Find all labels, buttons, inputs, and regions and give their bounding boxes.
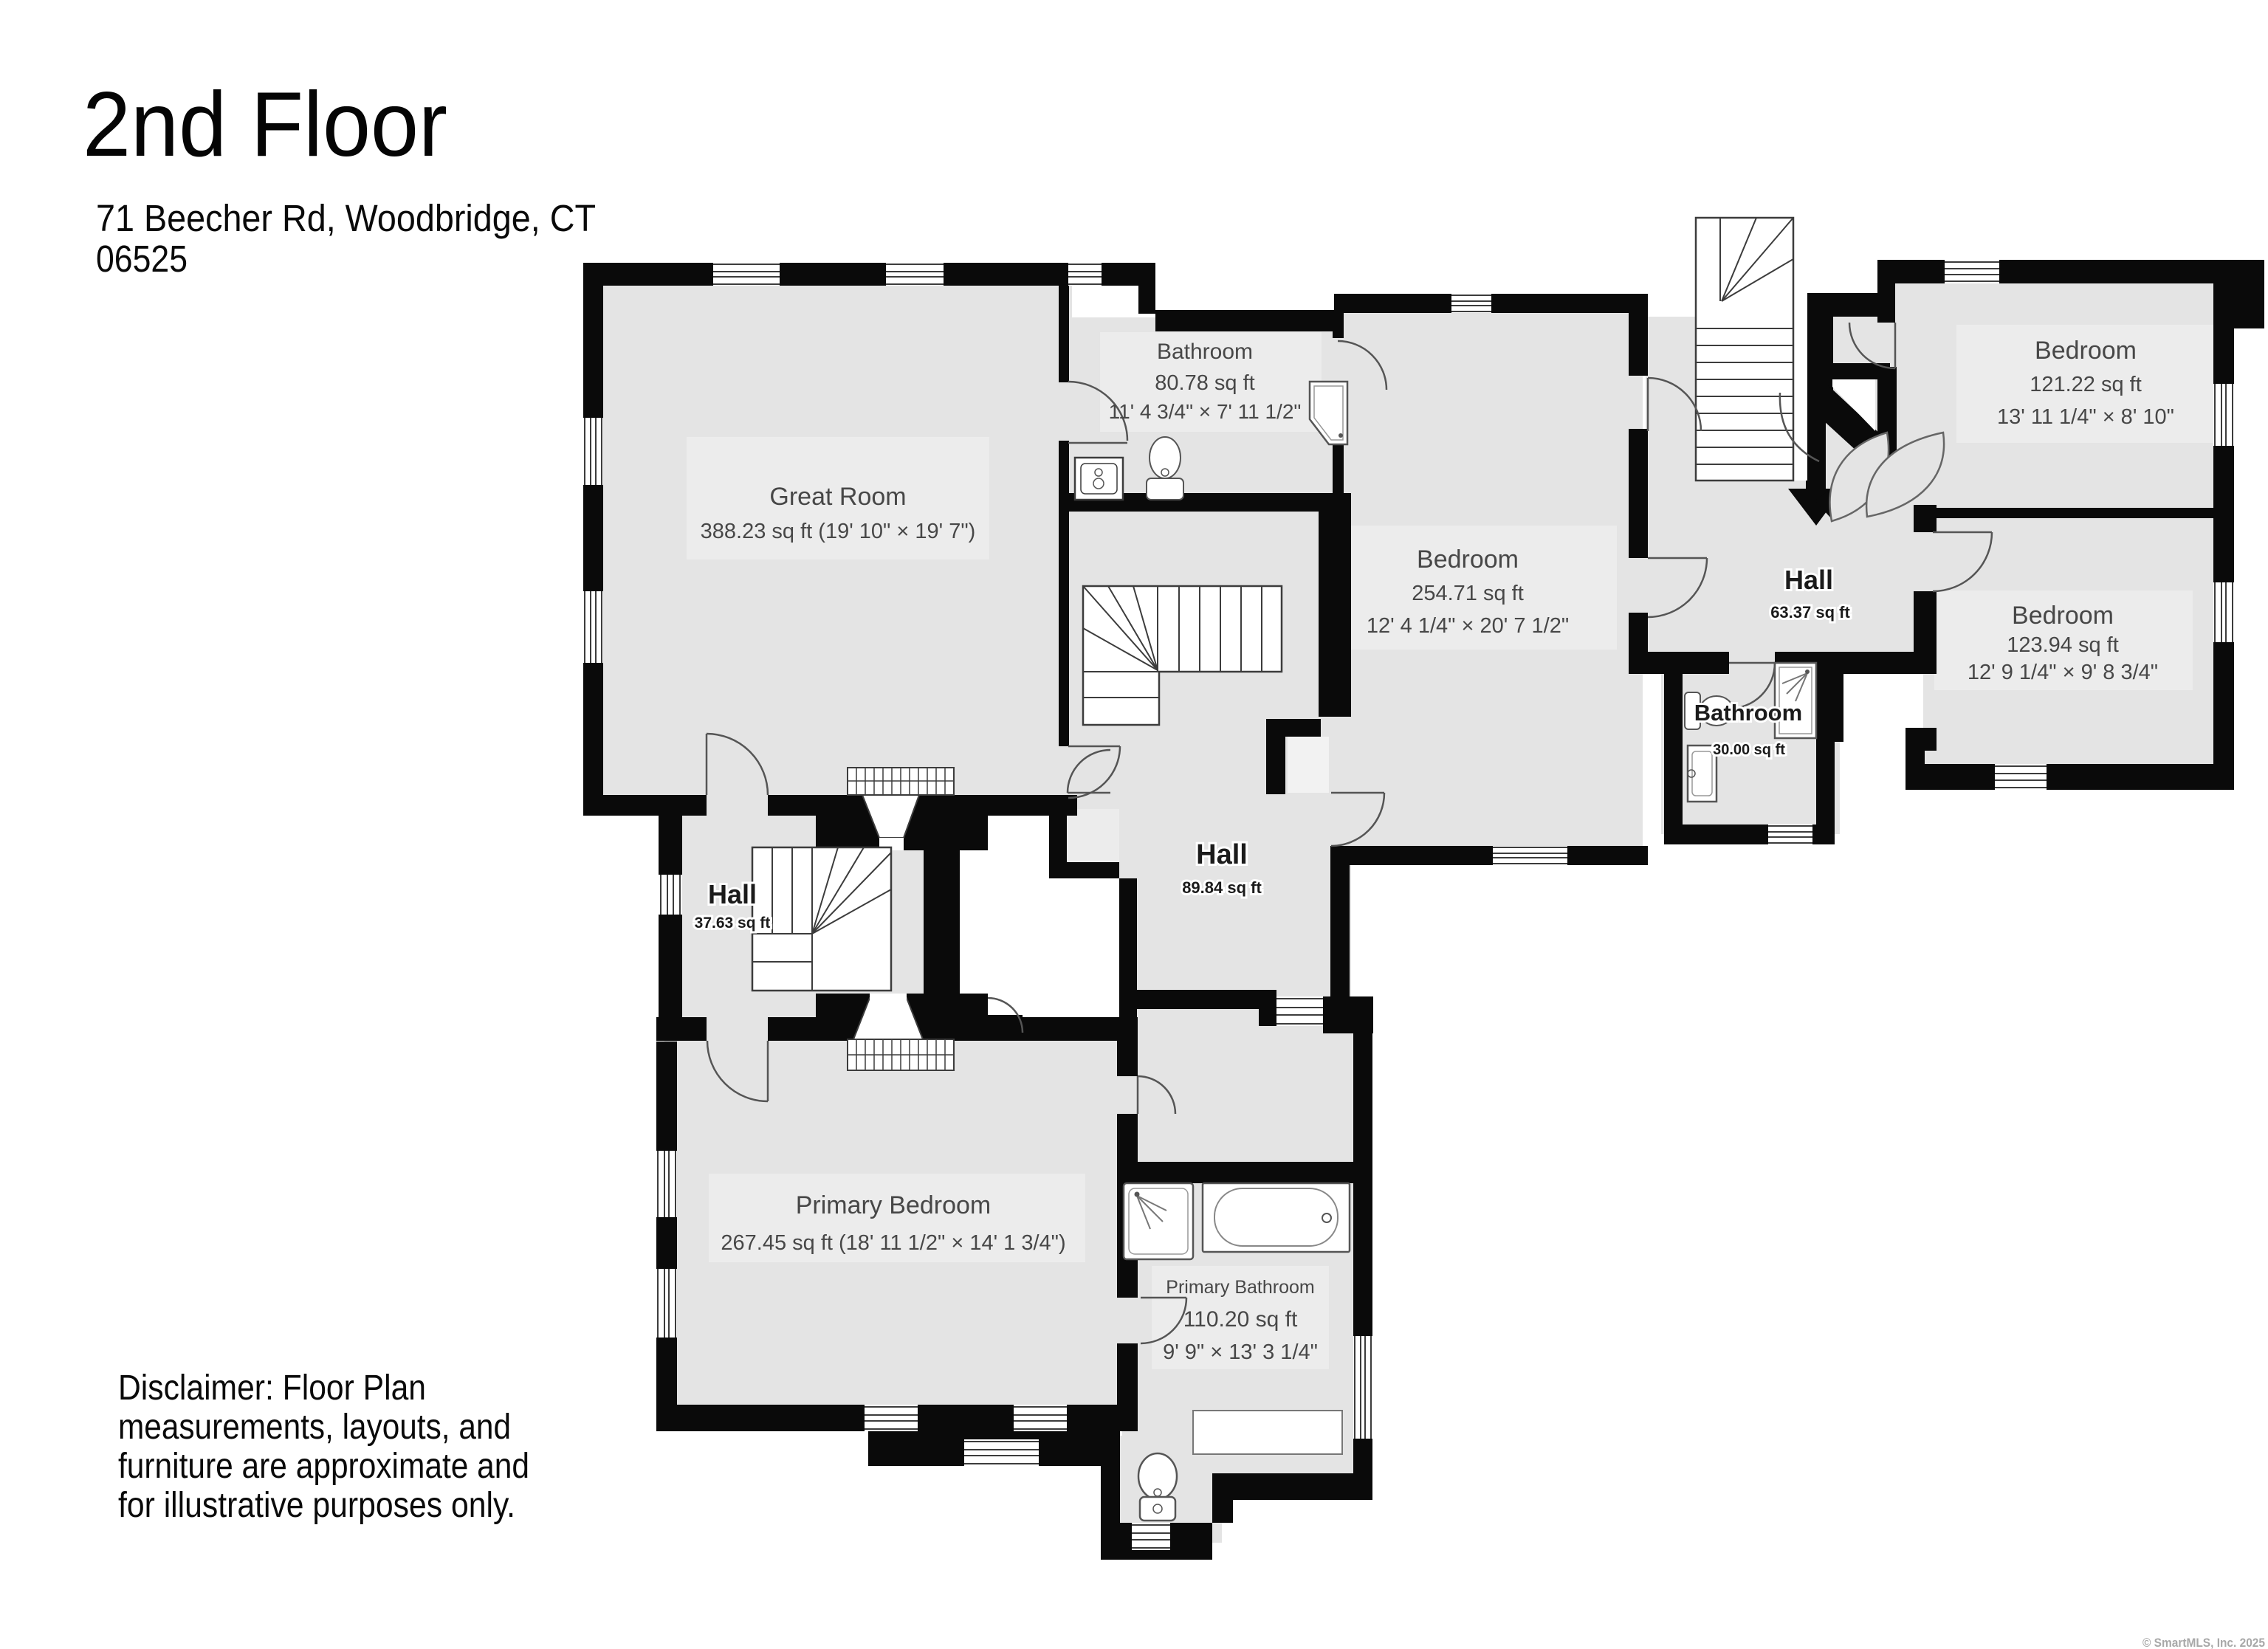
svg-text:2nd Floor: 2nd Floor <box>83 74 447 176</box>
svg-text:measurements, layouts, and: measurements, layouts, and <box>118 1408 511 1447</box>
svg-text:06525: 06525 <box>96 238 188 280</box>
svg-text:Great Room: Great Room <box>769 483 906 511</box>
svg-text:Hall: Hall <box>1196 839 1248 870</box>
svg-text:Bathroom: Bathroom <box>1157 340 1253 364</box>
svg-text:furniture are approximate and: furniture are approximate and <box>118 1447 529 1486</box>
svg-text:267.45 sq ft (18' 11 1/2" × 14: 267.45 sq ft (18' 11 1/2" × 14' 1 3/4") <box>721 1231 1065 1255</box>
svg-text:12' 4 1/4" × 20' 7 1/2": 12' 4 1/4" × 20' 7 1/2" <box>1367 614 1569 638</box>
svg-text:388.23 sq ft (19' 10" × 19' 7": 388.23 sq ft (19' 10" × 19' 7") <box>701 520 976 543</box>
svg-text:254.71 sq ft: 254.71 sq ft <box>1412 582 1524 605</box>
svg-text:11' 4 3/4" × 7' 11 1/2": 11' 4 3/4" × 7' 11 1/2" <box>1109 400 1302 423</box>
svg-text:13' 11 1/4" × 8' 10": 13' 11 1/4" × 8' 10" <box>1997 405 2174 429</box>
svg-text:121.22 sq ft: 121.22 sq ft <box>2030 373 2142 396</box>
svg-text:12' 9 1/4" × 9' 8 3/4": 12' 9 1/4" × 9' 8 3/4" <box>1968 661 2158 684</box>
svg-text:Primary Bedroom: Primary Bedroom <box>796 1191 992 1219</box>
svg-text:Bedroom: Bedroom <box>2012 602 2114 630</box>
svg-text:Bedroom: Bedroom <box>2035 337 2137 365</box>
svg-text:Bathroom: Bathroom <box>1694 700 1802 726</box>
svg-text:Bedroom: Bedroom <box>1417 545 1519 574</box>
svg-text:Hall: Hall <box>1784 565 1833 595</box>
svg-text:123.94 sq ft: 123.94 sq ft <box>2007 633 2119 657</box>
svg-text:71 Beecher Rd, Woodbridge, CT: 71 Beecher Rd, Woodbridge, CT <box>96 197 596 239</box>
svg-text:Disclaimer: Floor Plan: Disclaimer: Floor Plan <box>118 1369 426 1408</box>
svg-text:for illustrative purposes only: for illustrative purposes only. <box>118 1486 515 1525</box>
svg-text:89.84 sq ft: 89.84 sq ft <box>1182 878 1262 897</box>
svg-text:Hall: Hall <box>708 879 757 909</box>
svg-text:9' 9" × 13' 3 1/4": 9' 9" × 13' 3 1/4" <box>1163 1340 1318 1364</box>
svg-text:80.78 sq ft: 80.78 sq ft <box>1155 371 1254 395</box>
svg-text:63.37 sq ft: 63.37 sq ft <box>1770 603 1850 622</box>
svg-text:© SmartMLS, Inc. 2025: © SmartMLS, Inc. 2025 <box>2142 1636 2265 1649</box>
svg-text:37.63 sq ft: 37.63 sq ft <box>695 915 771 932</box>
svg-text:Primary Bathroom: Primary Bathroom <box>1166 1277 1314 1298</box>
svg-text:30.00 sq ft: 30.00 sq ft <box>1713 742 1785 758</box>
svg-text:110.20 sq ft: 110.20 sq ft <box>1183 1307 1298 1332</box>
